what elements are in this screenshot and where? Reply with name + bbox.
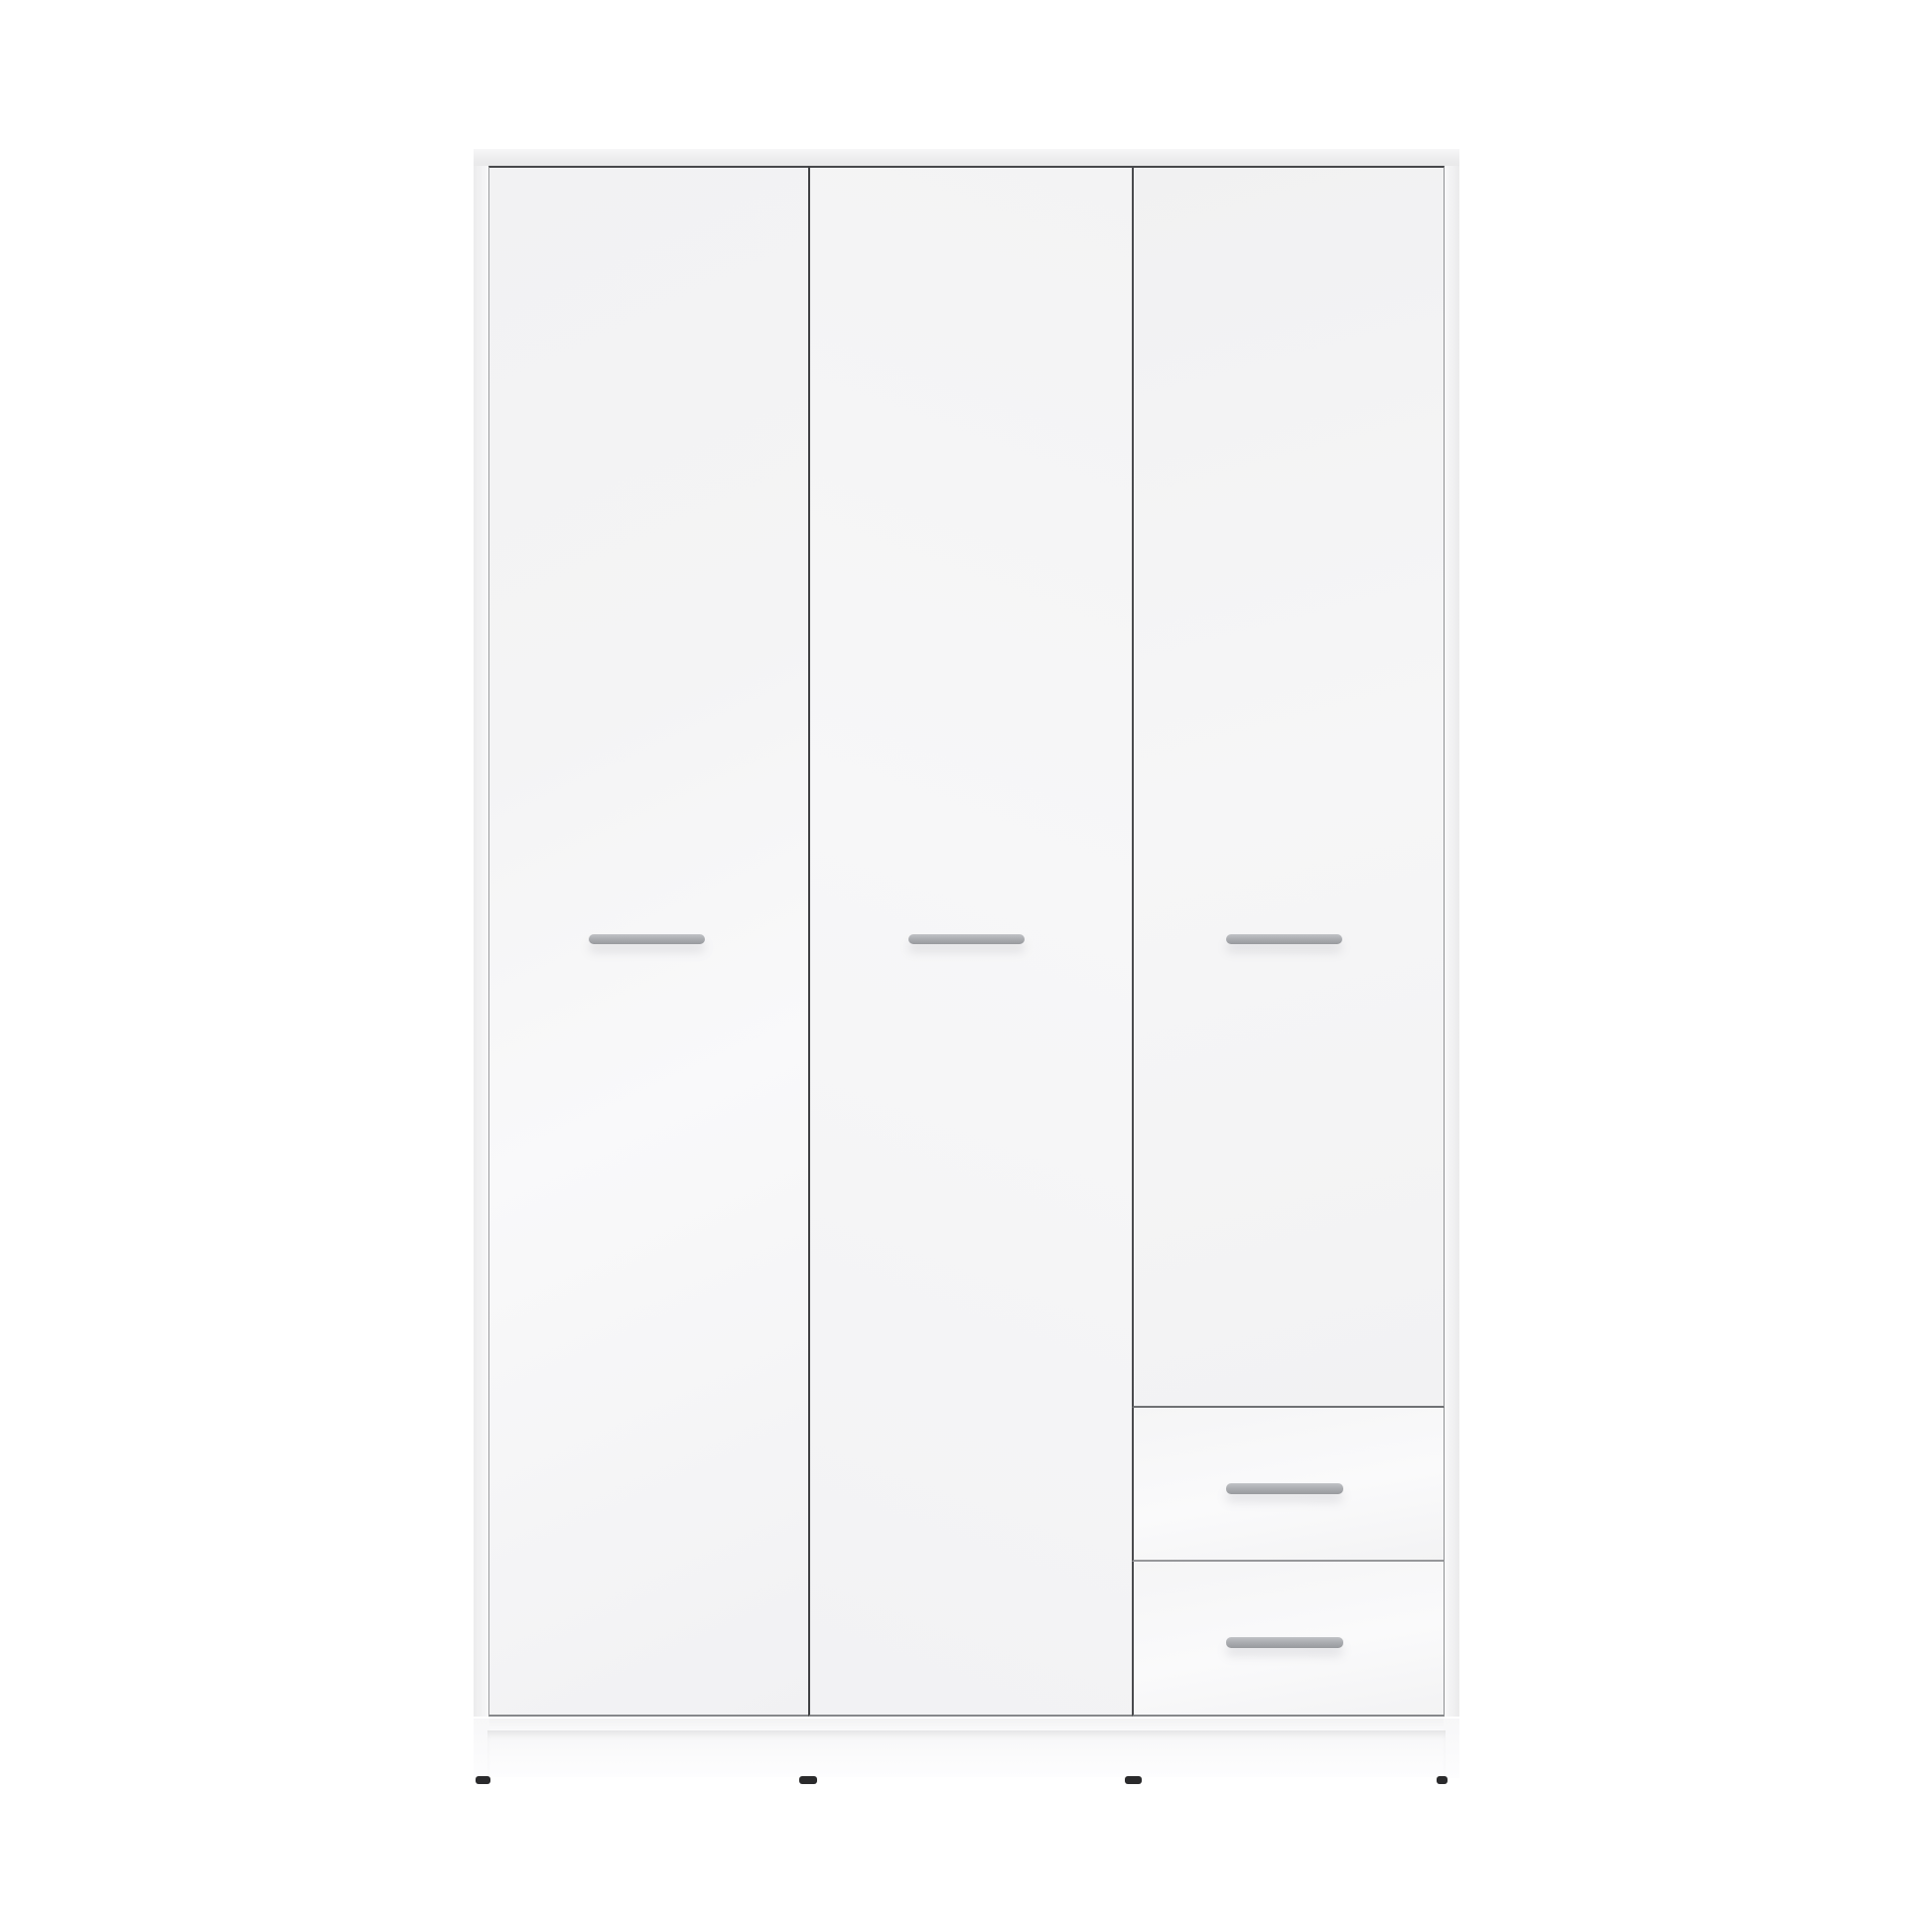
upper-drawer-handle [1226,1483,1343,1494]
right-side-panel [1445,166,1459,1717]
lower-drawer-handle [1226,1637,1343,1648]
bottom-edge-panel [474,1719,1459,1730]
right-leg [1444,1719,1459,1778]
foot [1125,1776,1142,1784]
foot [799,1776,817,1784]
foot [476,1776,490,1784]
middle-door-handle [908,934,1025,944]
product-photo [0,0,1932,1932]
wardrobe-top-panel [474,149,1459,166]
foot [1437,1776,1448,1784]
plinth [487,1730,1446,1777]
wardrobe [474,149,1459,1784]
left-door-handle [589,934,705,944]
left-side-panel [474,166,488,1717]
right-door-handle [1226,934,1342,944]
right-door [1132,166,1445,1408]
